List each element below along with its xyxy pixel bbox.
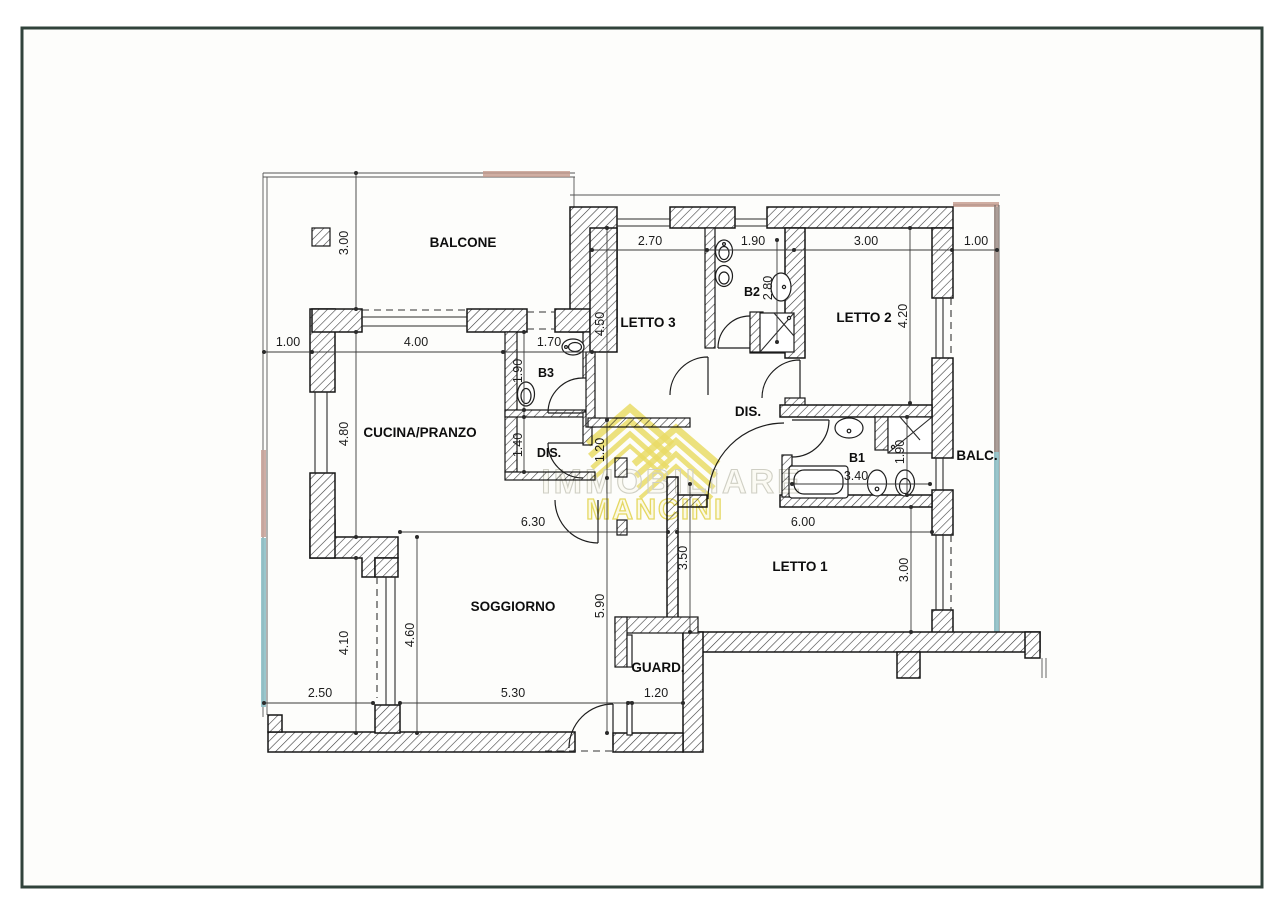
dim-letto1-height: 3.00 bbox=[897, 558, 911, 582]
dim-left-offset: 1.00 bbox=[276, 335, 300, 349]
dim-soggiorno-bottom-width: 5.30 bbox=[501, 686, 525, 700]
bidet-icon bbox=[716, 266, 733, 287]
toilet-icon bbox=[562, 339, 584, 355]
dim-letto1-split-height: 3.50 bbox=[676, 546, 690, 570]
room-label-cucina: CUCINA/PRANZO bbox=[363, 425, 476, 440]
dim-letto3-height: 4.50 bbox=[593, 312, 607, 336]
room-label-balc: BALC. bbox=[956, 448, 997, 463]
balcony-pillar bbox=[312, 228, 330, 246]
dim-balc-top-width: 1.00 bbox=[964, 234, 988, 248]
room-label-dis-small: DIS. bbox=[537, 446, 561, 460]
room-label-b2: B2 bbox=[744, 285, 760, 299]
dim-b2-width: 1.90 bbox=[741, 234, 765, 248]
room-label-letto3: LETTO 3 bbox=[620, 315, 676, 330]
dim-balcone-height: 3.00 bbox=[337, 231, 351, 255]
dim-cucina-width: 4.00 bbox=[404, 335, 428, 349]
dim-terrace-width: 2.50 bbox=[308, 686, 332, 700]
dim-soggiorno-width: 6.30 bbox=[521, 515, 545, 529]
dim-letto2-height: 4.20 bbox=[896, 304, 910, 328]
dim-letto1-width: 6.00 bbox=[791, 515, 815, 529]
dim-soggiorno-height: 4.60 bbox=[403, 623, 417, 647]
sink-icon bbox=[835, 418, 863, 438]
dim-terrace-height: 4.10 bbox=[337, 631, 351, 655]
room-label-letto1: LETTO 1 bbox=[772, 559, 828, 574]
toilet-icon bbox=[896, 470, 915, 496]
room-label-b1: B1 bbox=[849, 451, 865, 465]
dim-b3-top-width: 1.70 bbox=[537, 335, 561, 349]
dim-dis-small-height: 1.40 bbox=[511, 433, 525, 457]
dim-cucina-height: 4.80 bbox=[337, 422, 351, 446]
dim-guard-width: 1.20 bbox=[644, 686, 668, 700]
dim-b3-height: 1.90 bbox=[511, 359, 525, 383]
sink-icon bbox=[518, 382, 535, 406]
bidet-icon bbox=[868, 470, 887, 496]
floor-plan-canvas: 2.70 1.90 3.00 1.00 1.00 4.00 1.70 6.30 … bbox=[0, 0, 1280, 905]
room-label-balcone: BALCONE bbox=[430, 235, 497, 250]
dim-b1-width: 3.40 bbox=[844, 469, 868, 483]
door-guard-leaf2 bbox=[627, 702, 632, 735]
dim-b1-height: 1.90 bbox=[893, 440, 907, 464]
dim-letto3-width: 2.70 bbox=[638, 234, 662, 248]
room-label-guard: GUARD. bbox=[631, 660, 684, 675]
room-label-b3: B3 bbox=[538, 366, 554, 380]
dim-b2-height: 2.80 bbox=[761, 276, 775, 300]
room-label-letto2: LETTO 2 bbox=[836, 310, 891, 325]
watermark-line2: MANCINI bbox=[586, 494, 724, 526]
floor-plan-page: 2.70 1.90 3.00 1.00 1.00 4.00 1.70 6.30 … bbox=[0, 0, 1280, 905]
toilet-icon bbox=[716, 240, 733, 262]
dim-letto2-width: 3.00 bbox=[854, 234, 878, 248]
dim-soggiorno-full-height: 5.90 bbox=[593, 594, 607, 618]
room-label-dis-main: DIS. bbox=[735, 404, 761, 419]
room-label-soggiorno: SOGGIORNO bbox=[471, 599, 556, 614]
